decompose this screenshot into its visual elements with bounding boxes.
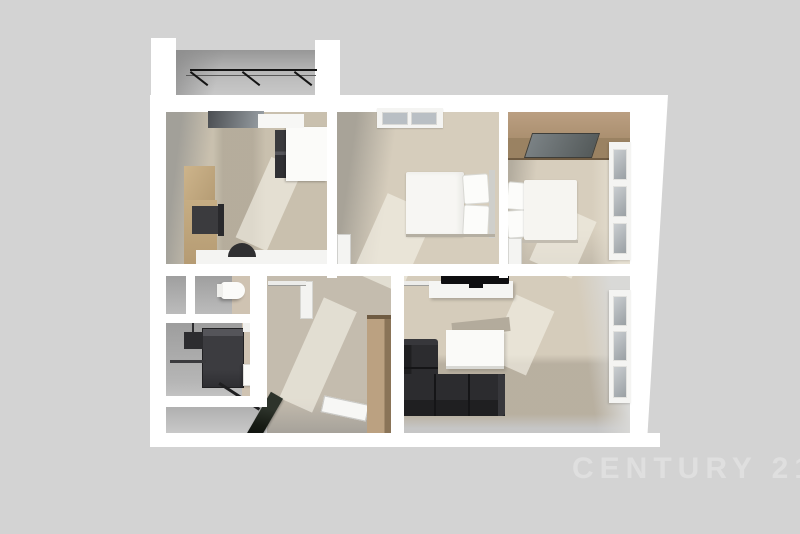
toilet — [221, 282, 245, 299]
interior-wall-bath-entry — [163, 396, 251, 407]
interior-wall-wc-bath — [163, 314, 251, 323]
sofa-armrest — [498, 374, 505, 416]
appliance-column — [275, 130, 286, 178]
hallway-wardrobe — [367, 315, 391, 437]
kitchen-cabinet — [184, 166, 215, 202]
window-pane — [613, 149, 627, 180]
floor-plan-render: CENTURY 21. — [0, 0, 800, 534]
window-pane — [382, 112, 408, 125]
interior-wall-bath-hallway — [250, 264, 267, 407]
window-pane — [613, 223, 627, 254]
toilet-tank — [217, 284, 223, 297]
coffee-table — [446, 330, 504, 369]
towel-bar — [170, 360, 206, 363]
century21-watermark: CENTURY 21. — [572, 452, 797, 486]
window-pane — [613, 366, 627, 398]
bed-frame-edge — [406, 234, 495, 237]
shower-enclosure — [202, 328, 244, 388]
wardrobe-mirror-panel — [524, 133, 600, 158]
fridge — [286, 127, 327, 181]
balcony-railing — [190, 69, 317, 71]
interior-wall-bedrooms — [499, 110, 508, 278]
outer-wall-bottom — [150, 433, 660, 447]
shower-head — [184, 332, 203, 349]
double-bed-duvet — [406, 172, 464, 236]
window-pane — [613, 186, 627, 217]
wall-shelf — [404, 281, 430, 286]
balcony-right-wall — [315, 40, 340, 100]
window-pane — [613, 331, 627, 361]
kitchen-window — [208, 111, 264, 128]
bed-duvet — [524, 180, 577, 240]
pillow — [462, 173, 490, 205]
coat-shelf — [268, 281, 306, 286]
window-pane — [411, 112, 437, 125]
cooktop — [192, 206, 218, 234]
bed-headboard — [489, 170, 495, 238]
balcony-left-wall — [151, 38, 176, 100]
window-pane — [613, 296, 627, 326]
oven — [218, 204, 224, 236]
interior-wall-hallway-living — [391, 264, 404, 447]
interior-wall-closet-wc — [186, 276, 195, 316]
kitchen-window-sill — [258, 114, 304, 128]
interior-wall-kitchen-bedroom — [327, 108, 337, 278]
corner-sofa-bottom-section — [402, 374, 505, 416]
hallway-door — [300, 281, 313, 319]
tv-stand — [469, 284, 483, 288]
pillow — [462, 204, 490, 236]
